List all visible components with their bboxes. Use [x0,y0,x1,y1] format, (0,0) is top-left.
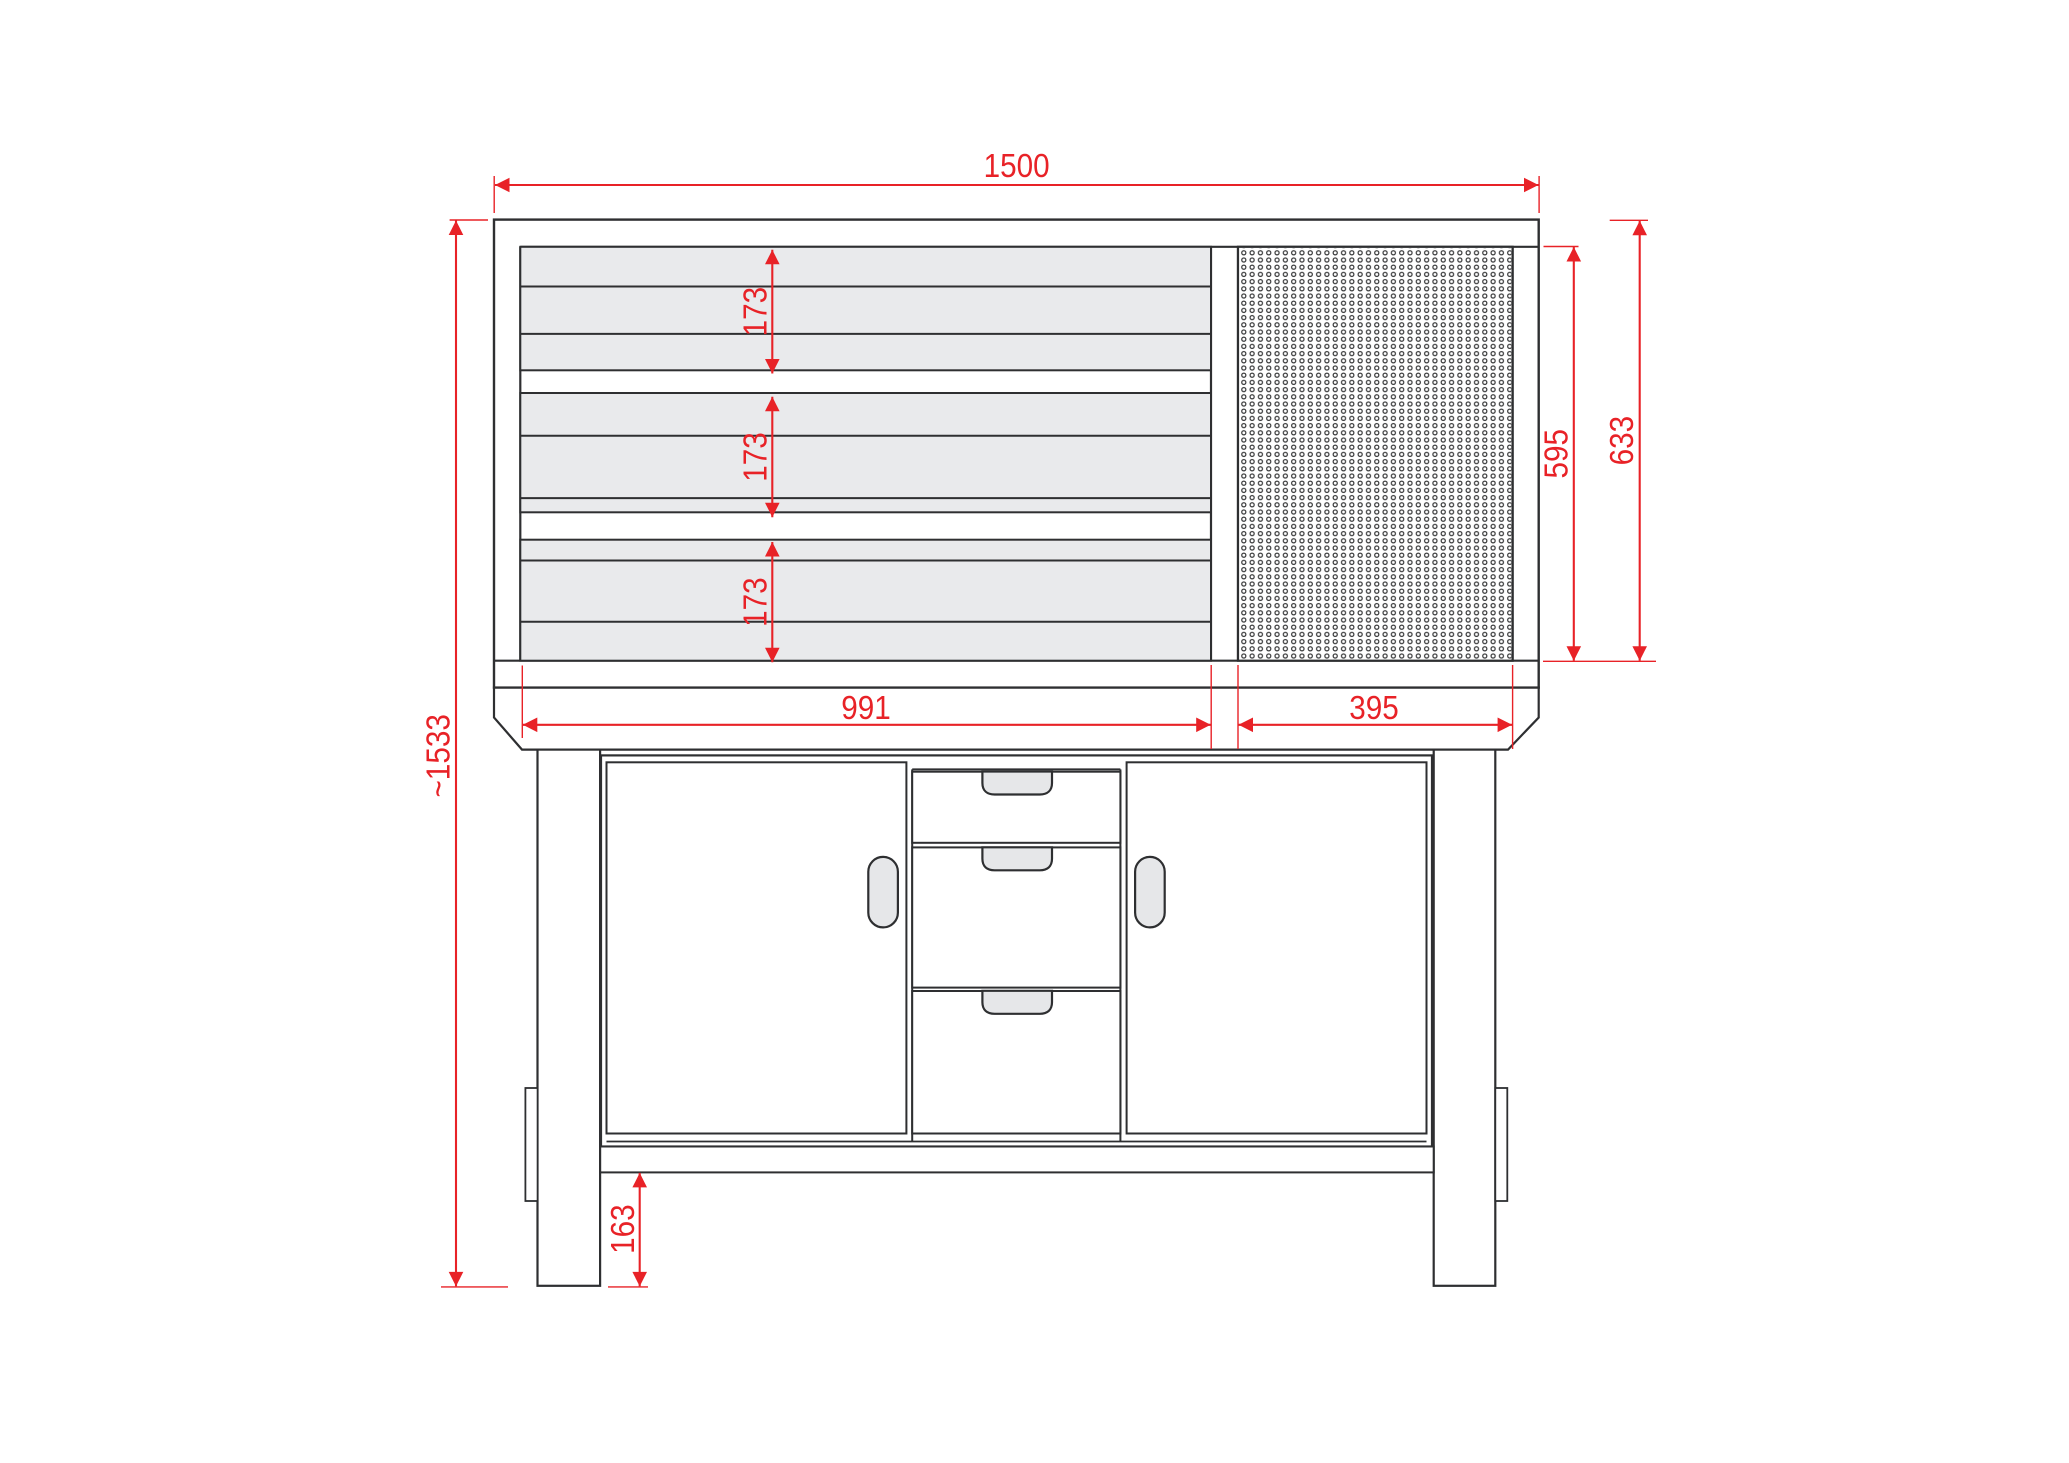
svg-text:595: 595 [1537,429,1574,479]
svg-text:163: 163 [604,1204,641,1254]
svg-text:173: 173 [736,287,773,337]
svg-text:395: 395 [1349,689,1399,726]
svg-text:~1533: ~1533 [420,714,457,798]
svg-text:991: 991 [841,689,891,726]
svg-text:633: 633 [1603,416,1640,466]
svg-text:1500: 1500 [984,147,1050,184]
svg-text:173: 173 [736,432,773,482]
svg-text:173: 173 [736,577,773,627]
